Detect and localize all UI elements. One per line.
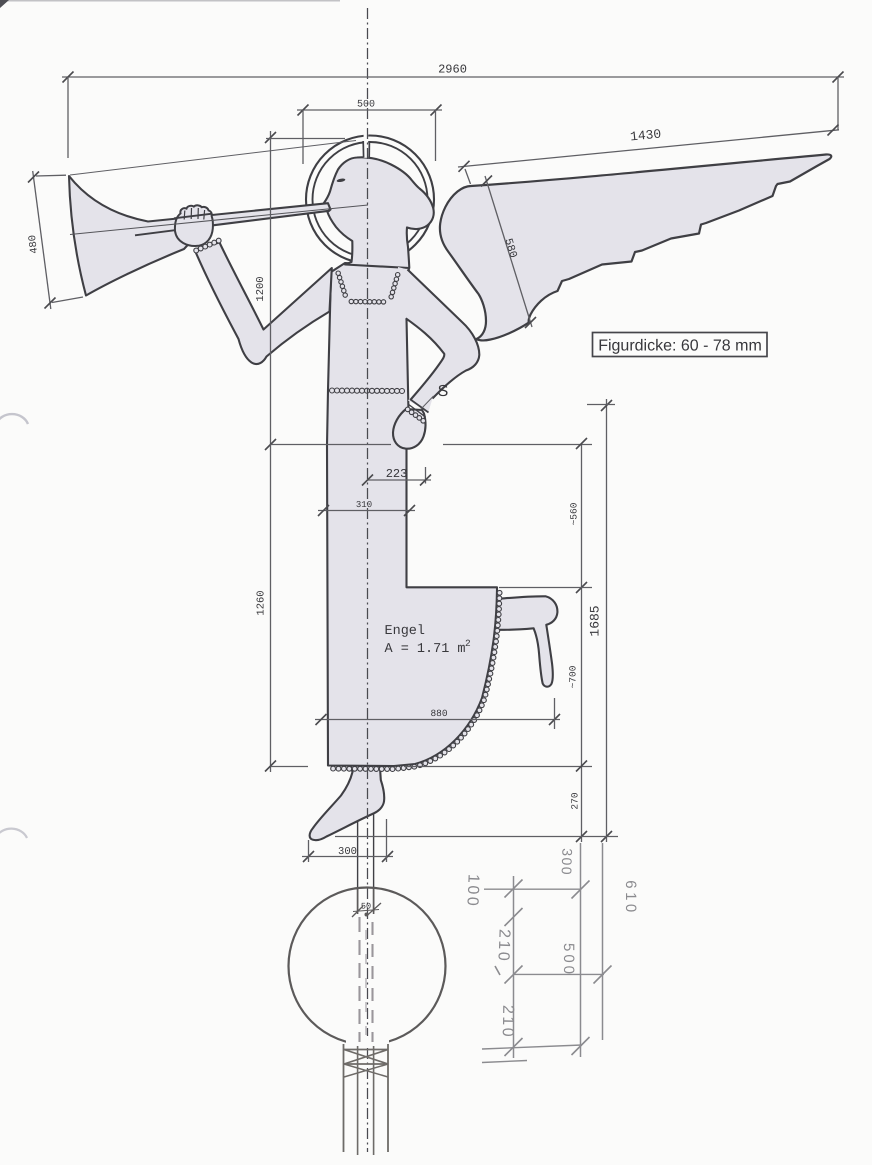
svg-text:1430: 1430 (629, 127, 662, 145)
svg-text:2960: 2960 (438, 63, 467, 77)
svg-text:1685: 1685 (588, 605, 603, 636)
svg-text:300: 300 (338, 846, 357, 858)
svg-text:310: 310 (356, 500, 372, 510)
svg-text:210: 210 (499, 1005, 517, 1039)
svg-text:Engel: Engel (385, 624, 426, 639)
svg-text:~700: ~700 (568, 665, 579, 688)
svg-text:223: 223 (386, 467, 408, 481)
svg-text:~560: ~560 (569, 502, 580, 525)
svg-text:1200: 1200 (255, 276, 267, 301)
svg-text:610: 610 (622, 880, 639, 916)
svg-text:S: S (438, 383, 449, 400)
svg-text:500: 500 (357, 100, 375, 111)
svg-text:100: 100 (463, 874, 481, 909)
svg-text:880: 880 (430, 708, 447, 719)
svg-text:A = 1.71 m: A = 1.71 m (385, 642, 466, 657)
svg-text:270: 270 (570, 792, 581, 809)
svg-text:300: 300 (559, 848, 576, 876)
svg-text:210: 210 (494, 929, 512, 964)
svg-text:2: 2 (465, 638, 471, 649)
svg-text:Figurdicke: 60 - 78 mm: Figurdicke: 60 - 78 mm (598, 338, 762, 355)
svg-text:500: 500 (560, 943, 577, 977)
svg-text:1260: 1260 (256, 590, 268, 615)
svg-text:480: 480 (27, 234, 41, 254)
